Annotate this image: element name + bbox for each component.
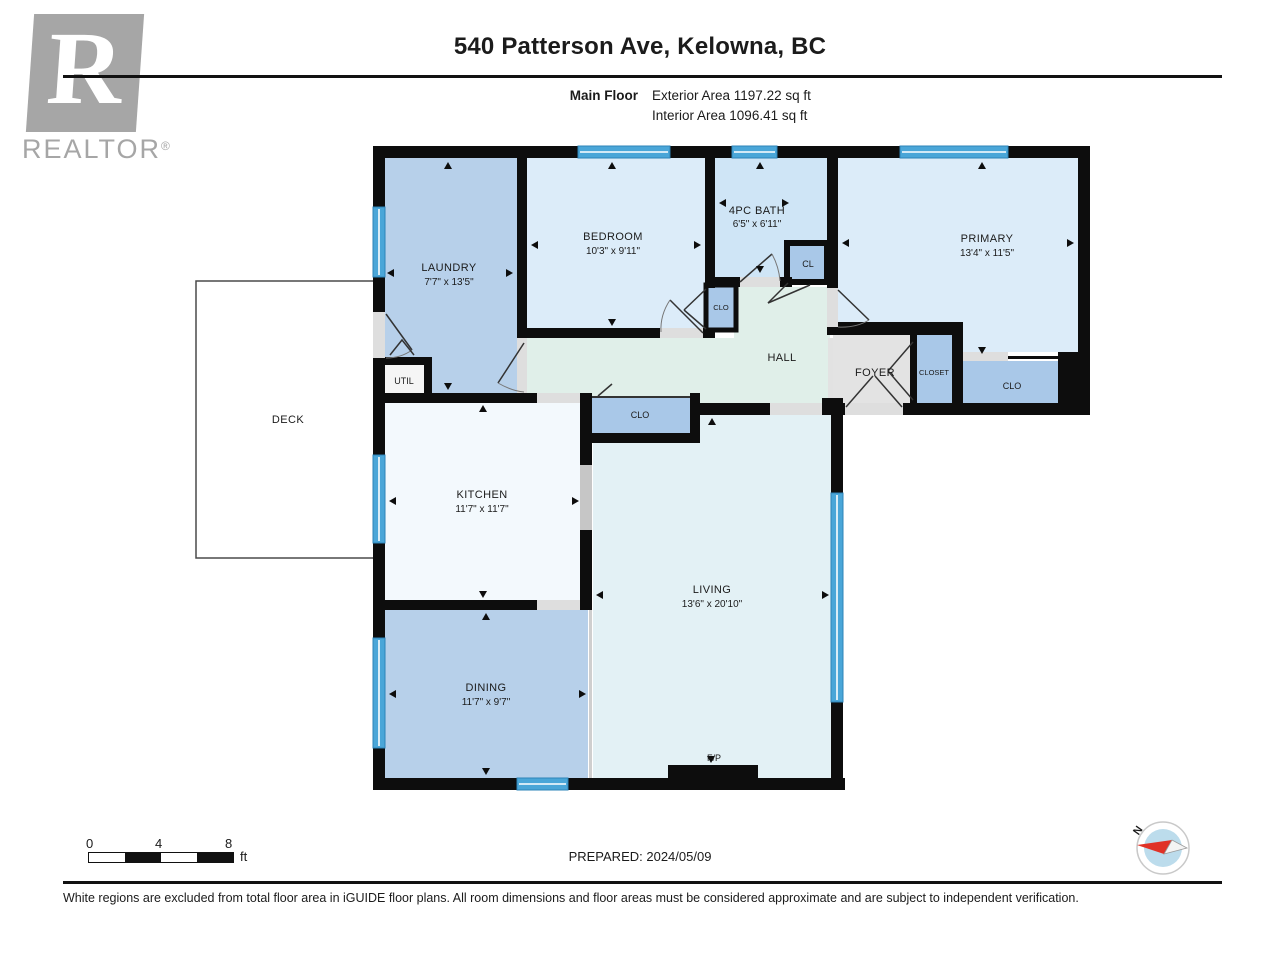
dims-living: 13'6" x 20'10" [682,599,743,610]
label-kitchen: KITCHEN [456,489,507,501]
label-deck: DECK [272,414,304,426]
floor-plan: LAUNDRY 7'7" x 13'5" BEDROOM 10'3" x 9'1… [0,0,1280,960]
footer-divider [63,881,1222,884]
label-dining: DINING [466,682,507,694]
label-fireplace: F/P [707,753,721,763]
scale-tick-4: 4 [155,836,162,851]
dims-laundry: 7'7" x 13'5" [424,277,474,288]
label-clo-bedroom: CLO [713,303,729,312]
label-clo-right: CLO [1003,381,1022,391]
scale-unit: ft [240,849,247,864]
dims-kitchen: 11'7" x 11'7" [455,504,509,515]
dims-dining: 11'7" x 9'7" [462,697,511,708]
label-util: UTIL [394,376,414,386]
compass-icon: N [1128,815,1200,887]
dims-bedroom: 10'3" x 9'11" [586,246,641,257]
label-clo-center: CLO [631,410,650,420]
fireplace-box [668,765,758,782]
label-living: LIVING [693,584,731,596]
prepared-date: PREPARED: 2024/05/09 [490,849,790,864]
label-laundry: LAUNDRY [421,262,476,274]
scale-bar [88,852,234,863]
dims-primary: 13'4" x 11'5" [960,248,1015,259]
label-primary: PRIMARY [961,233,1014,245]
label-foyer: FOYER [855,367,895,379]
label-hall: HALL [767,352,796,364]
scale-tick-8: 8 [225,836,232,851]
label-bath: 4PC BATH [729,205,785,217]
disclaimer-text: White regions are excluded from total fl… [63,891,1079,905]
label-cl: CL [802,259,814,269]
label-closet: CLOSET [919,368,949,377]
scale-tick-0: 0 [86,836,93,851]
label-bedroom: BEDROOM [583,231,643,243]
dims-bath: 6'5" x 6'11" [733,219,782,230]
